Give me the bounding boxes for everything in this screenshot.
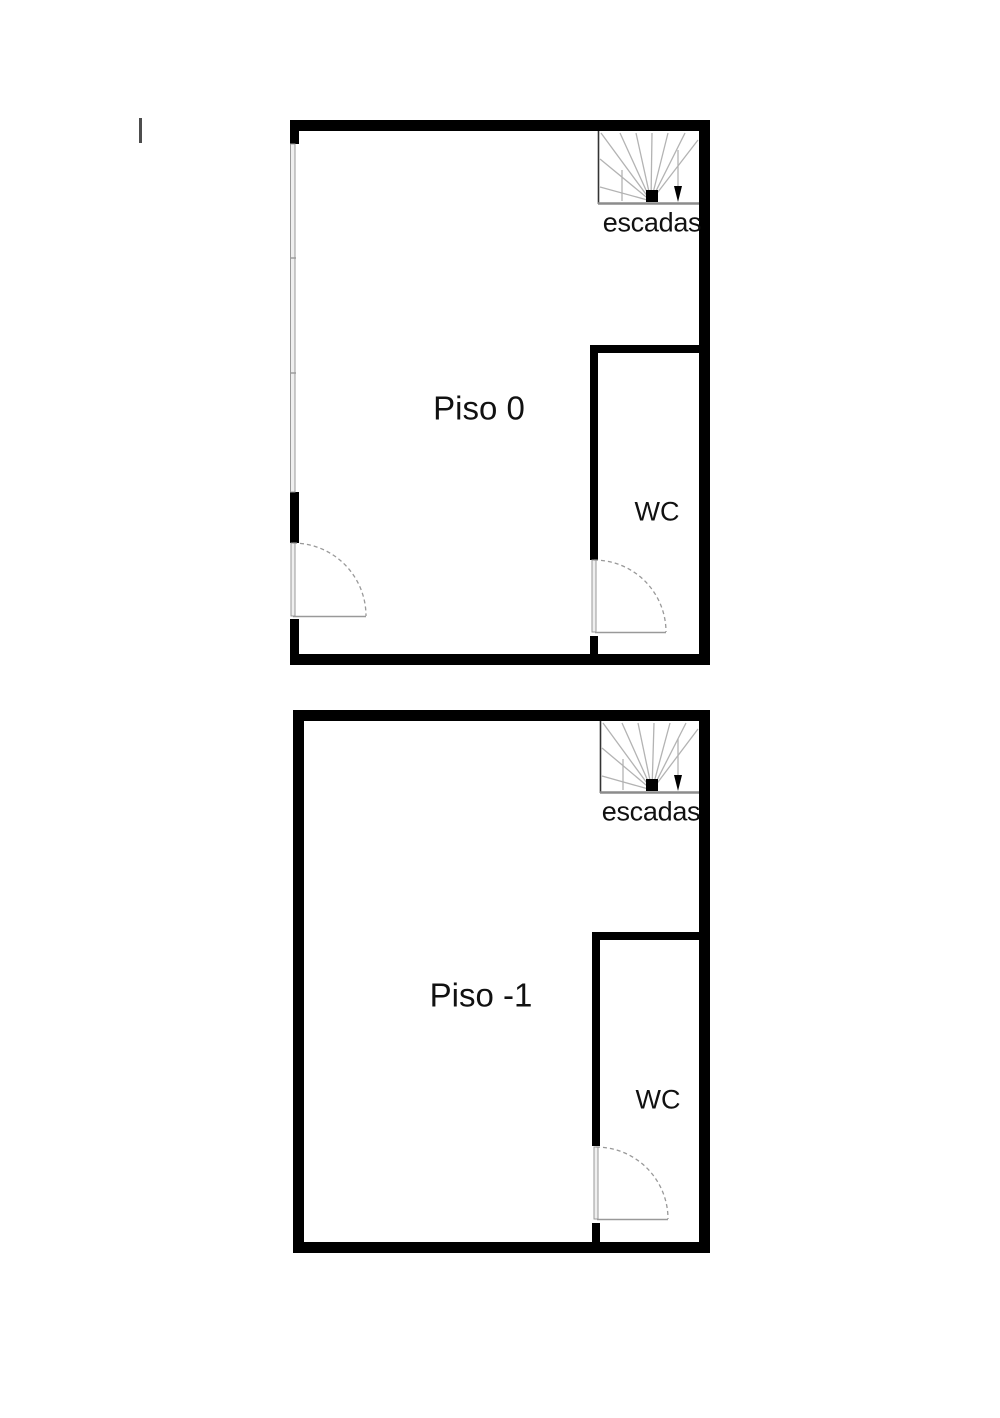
piso0-wc-door <box>592 560 666 633</box>
piso0-stairs <box>598 131 699 204</box>
piso0-window-strip <box>291 144 296 492</box>
piso0-stairs-direction-arrow <box>674 150 682 202</box>
piso0-wall-bottom <box>290 654 710 665</box>
piso-1-wall-top <box>293 710 710 721</box>
piso0-stairs-label: escadas <box>603 210 701 237</box>
piso-1-stairs-label: escadas <box>602 799 700 826</box>
piso0-entry-door <box>291 543 366 617</box>
piso0-wc-wall-top <box>590 345 699 353</box>
piso0-entry-door-jamb <box>291 543 295 616</box>
piso-1-stairs-newel-post <box>646 779 658 791</box>
piso0-entry-door-swing-arc <box>293 543 366 616</box>
piso0-wall-left-top-stub <box>290 120 299 144</box>
piso-1-wc-door-jamb <box>594 1147 598 1219</box>
piso0-wc-wall-left <box>590 345 598 560</box>
piso0-wc-wall-left-stub <box>590 636 598 665</box>
piso0-wc-label: WC <box>635 499 680 526</box>
piso-1-wc-door-swing-arc <box>596 1147 668 1219</box>
piso0-wc-door-jamb <box>592 560 596 632</box>
piso-1-stairs <box>600 721 699 793</box>
piso0-wall-left-bottom <box>290 619 299 665</box>
piso-1-wc-wall-left <box>592 932 600 1146</box>
piso-1-wc-door <box>594 1147 668 1220</box>
piso-1-wc-label: WC <box>636 1087 681 1114</box>
piso-1-title-label: Piso -1 <box>430 979 533 1012</box>
piso0-stairs-newel-post <box>646 190 658 202</box>
page-tick-mark <box>139 118 142 143</box>
piso-1-wall-left <box>293 710 304 1253</box>
floorplan-linework <box>0 0 1000 1418</box>
piso0-wall-right <box>699 120 710 665</box>
piso-1-wc-wall-left-stub <box>592 1223 600 1253</box>
piso0-wc-door-swing-arc <box>594 560 666 632</box>
piso-1-wc-wall-top <box>592 932 699 940</box>
piso0-window-left <box>290 144 296 492</box>
piso0-wall-left-mid <box>290 492 299 543</box>
floorplan-canvas: Piso 0 WC escadas Piso -1 WC escadas <box>0 0 1000 1418</box>
piso0-title-label: Piso 0 <box>433 392 525 425</box>
piso-1-wall-bottom <box>293 1242 710 1253</box>
piso-1-stairs-direction-arrow <box>674 739 682 791</box>
piso-1-wall-right <box>699 710 710 1253</box>
piso0-wall-top <box>290 120 710 131</box>
